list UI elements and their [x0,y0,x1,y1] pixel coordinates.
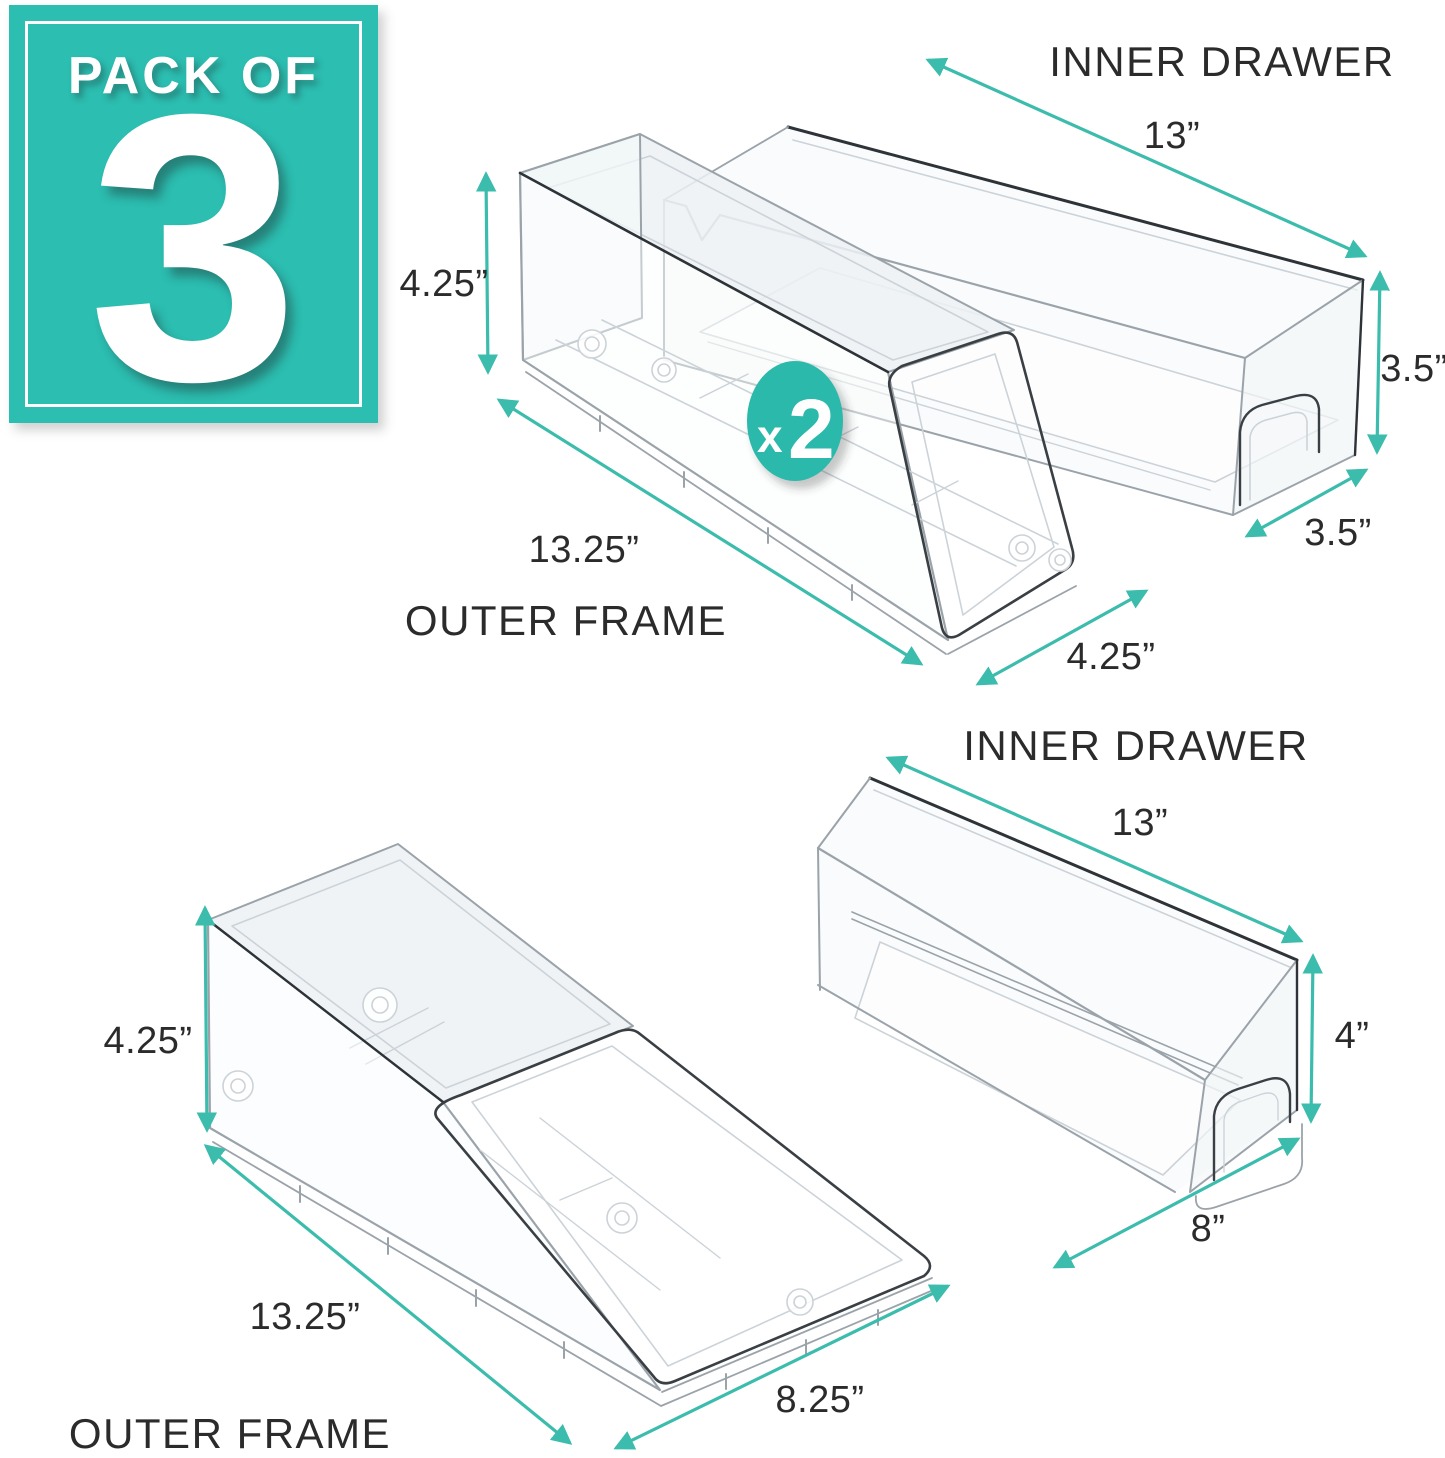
foot-ring [1016,542,1028,554]
top-outer-length-dim: 13.25” [529,529,640,571]
multiplier-count: 2 [788,382,835,476]
top-inner-depth-dim: 3.5” [1304,512,1371,554]
bottom-inner-depth-dim: 8” [1191,1208,1226,1250]
foot-ring [231,1079,245,1093]
top-inner-drawer-label: INNER DRAWER [1049,38,1394,85]
foot-ring [372,997,388,1013]
product-dimension-diagram: PACK OF 3 [0,0,1445,1458]
foot-ring [794,1296,806,1308]
bottom-outer-height-arrow [205,908,207,1130]
bottom-outer-length-dim: 13.25” [250,1296,361,1338]
foot-ring [1055,555,1065,565]
top-outer-depth-dim: 4.25” [1066,636,1155,678]
top-inner-length-dim: 13” [1144,115,1200,157]
bottom-inner-drawer-label: INNER DRAWER [963,722,1308,769]
diagram-canvas: x 2 INNER DRAWER 13” 3.5” 3.5” 4.25” 13.… [0,0,1445,1458]
bottom-inner-height-dim: 4” [1335,1015,1370,1057]
foot-ring [585,337,599,351]
bottom-outer-depth-arrow [616,1286,948,1448]
bottom-inner-length-dim: 13” [1112,802,1168,844]
bottom-outer-height-dim: 4.25” [103,1020,192,1062]
multiplier-x: x [757,410,783,462]
bottom-outer-frame-label: OUTER FRAME [69,1410,391,1457]
top-outer-height-dim: 4.25” [399,263,488,305]
foot-ring [658,364,670,376]
bottom-outer-depth-dim: 8.25” [775,1379,864,1421]
bottom-inner-drawer-drawing [818,778,1302,1209]
bottom-inner-height-arrow [1311,956,1313,1121]
top-outer-frame-label: OUTER FRAME [405,597,727,644]
foot-ring [615,1211,629,1225]
top-inner-height-dim: 3.5” [1380,348,1445,390]
